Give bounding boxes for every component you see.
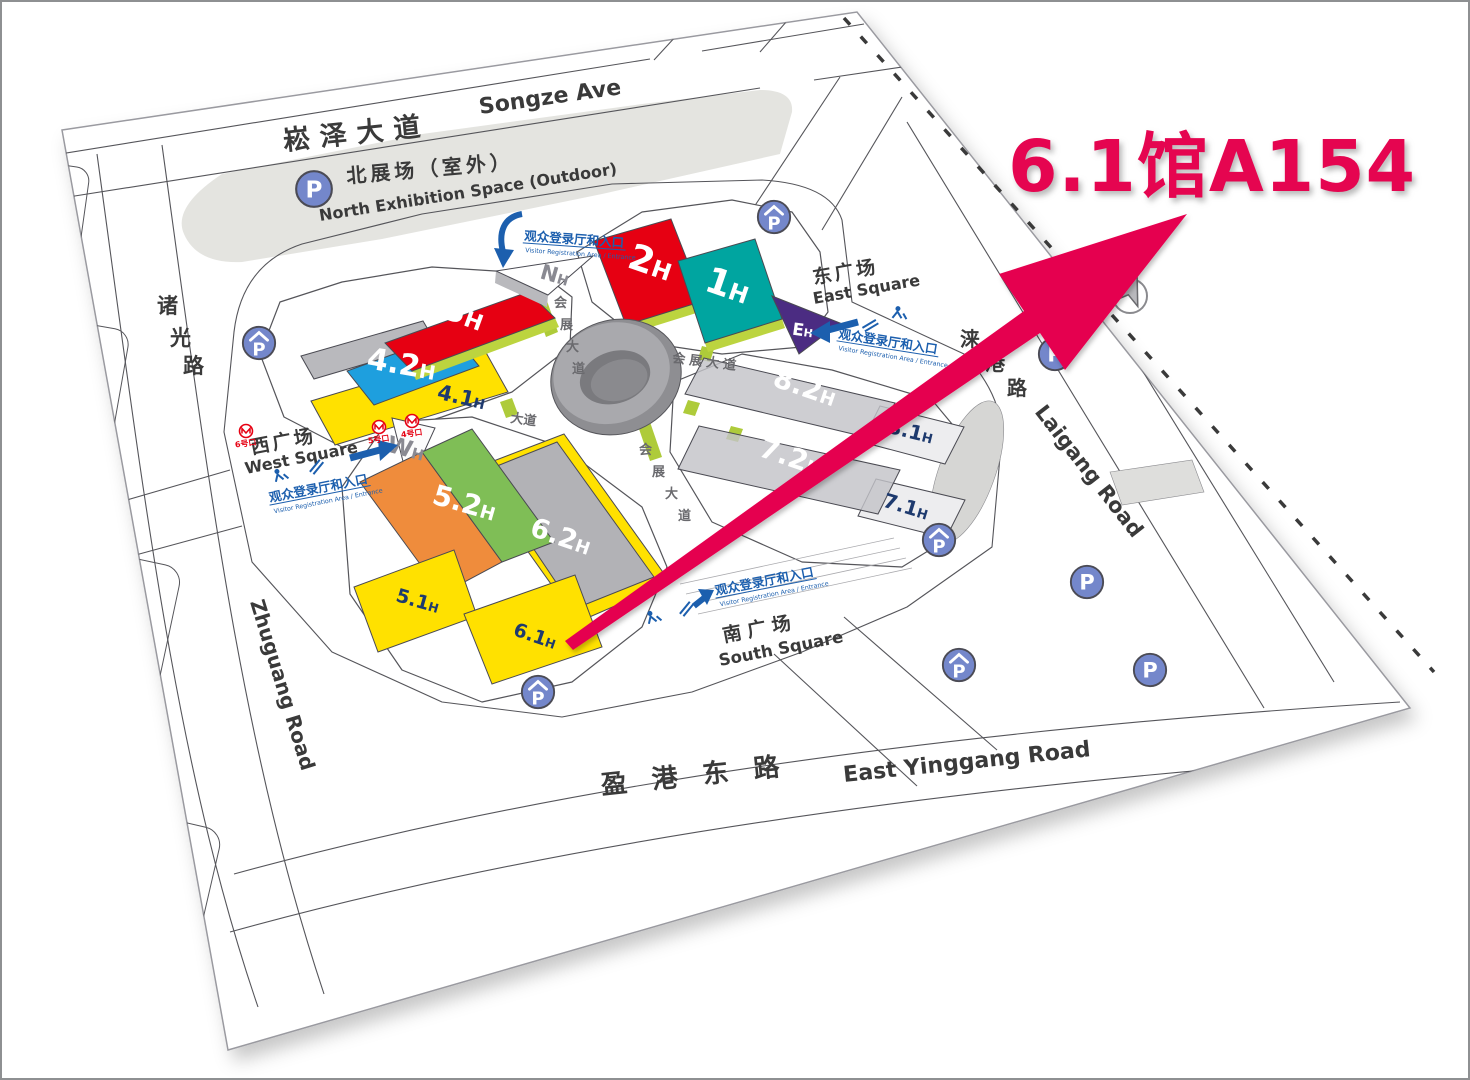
svg-text:会: 会 <box>639 442 653 458</box>
parking-icon-west <box>243 327 275 361</box>
metro-logo-icon <box>406 415 419 428</box>
svg-text:会: 会 <box>554 295 568 311</box>
parking-icon-south-square <box>943 649 975 683</box>
parking-icon-northeast <box>758 201 790 235</box>
svg-text:光: 光 <box>169 326 191 350</box>
parking-icon-north <box>296 171 332 207</box>
svg-text:路: 路 <box>1007 376 1028 400</box>
svg-text:展: 展 <box>560 318 574 333</box>
svg-text:道: 道 <box>678 508 691 524</box>
svg-text:道: 道 <box>572 361 585 377</box>
metro-logo-icon <box>240 425 253 438</box>
svg-text:路: 路 <box>183 354 205 378</box>
metro-logo-icon <box>373 421 386 434</box>
parking-icon-southeast <box>923 524 955 558</box>
screenshot-frame: P P <box>0 0 1470 1080</box>
parking-icon-right-mid <box>1071 566 1103 598</box>
svg-text:大: 大 <box>566 339 579 355</box>
svg-text:大: 大 <box>665 486 678 502</box>
booth-headline: 6.1馆A154 <box>1008 110 1416 212</box>
svg-text:展: 展 <box>652 465 666 480</box>
svg-text:诸: 诸 <box>157 294 178 318</box>
parking-icon-south-gate <box>522 676 554 710</box>
parking-icon-far-right <box>1134 654 1166 686</box>
